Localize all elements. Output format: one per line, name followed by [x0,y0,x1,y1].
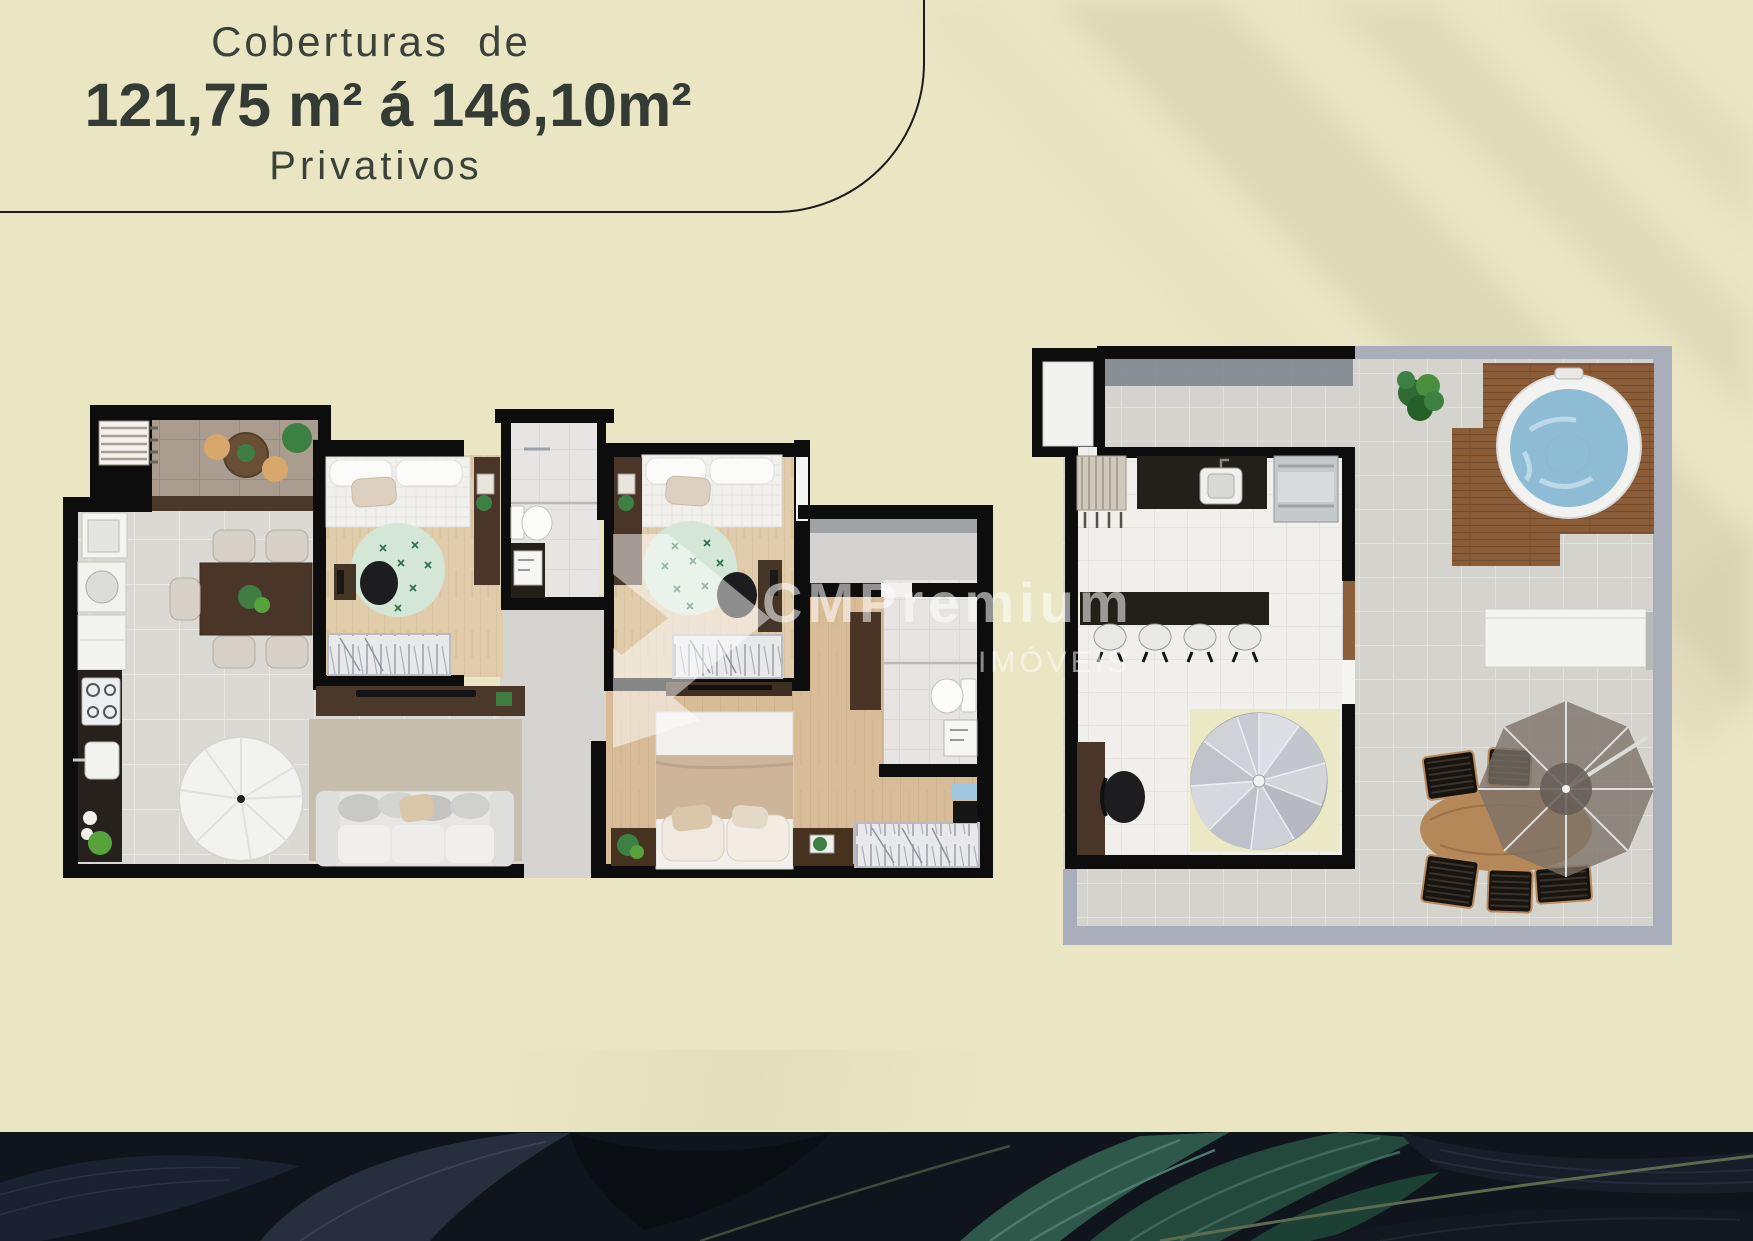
svg-text:CMPremium: CMPremium [762,571,1134,634]
svg-text:IMÓVEIS: IMÓVEIS [978,646,1131,679]
